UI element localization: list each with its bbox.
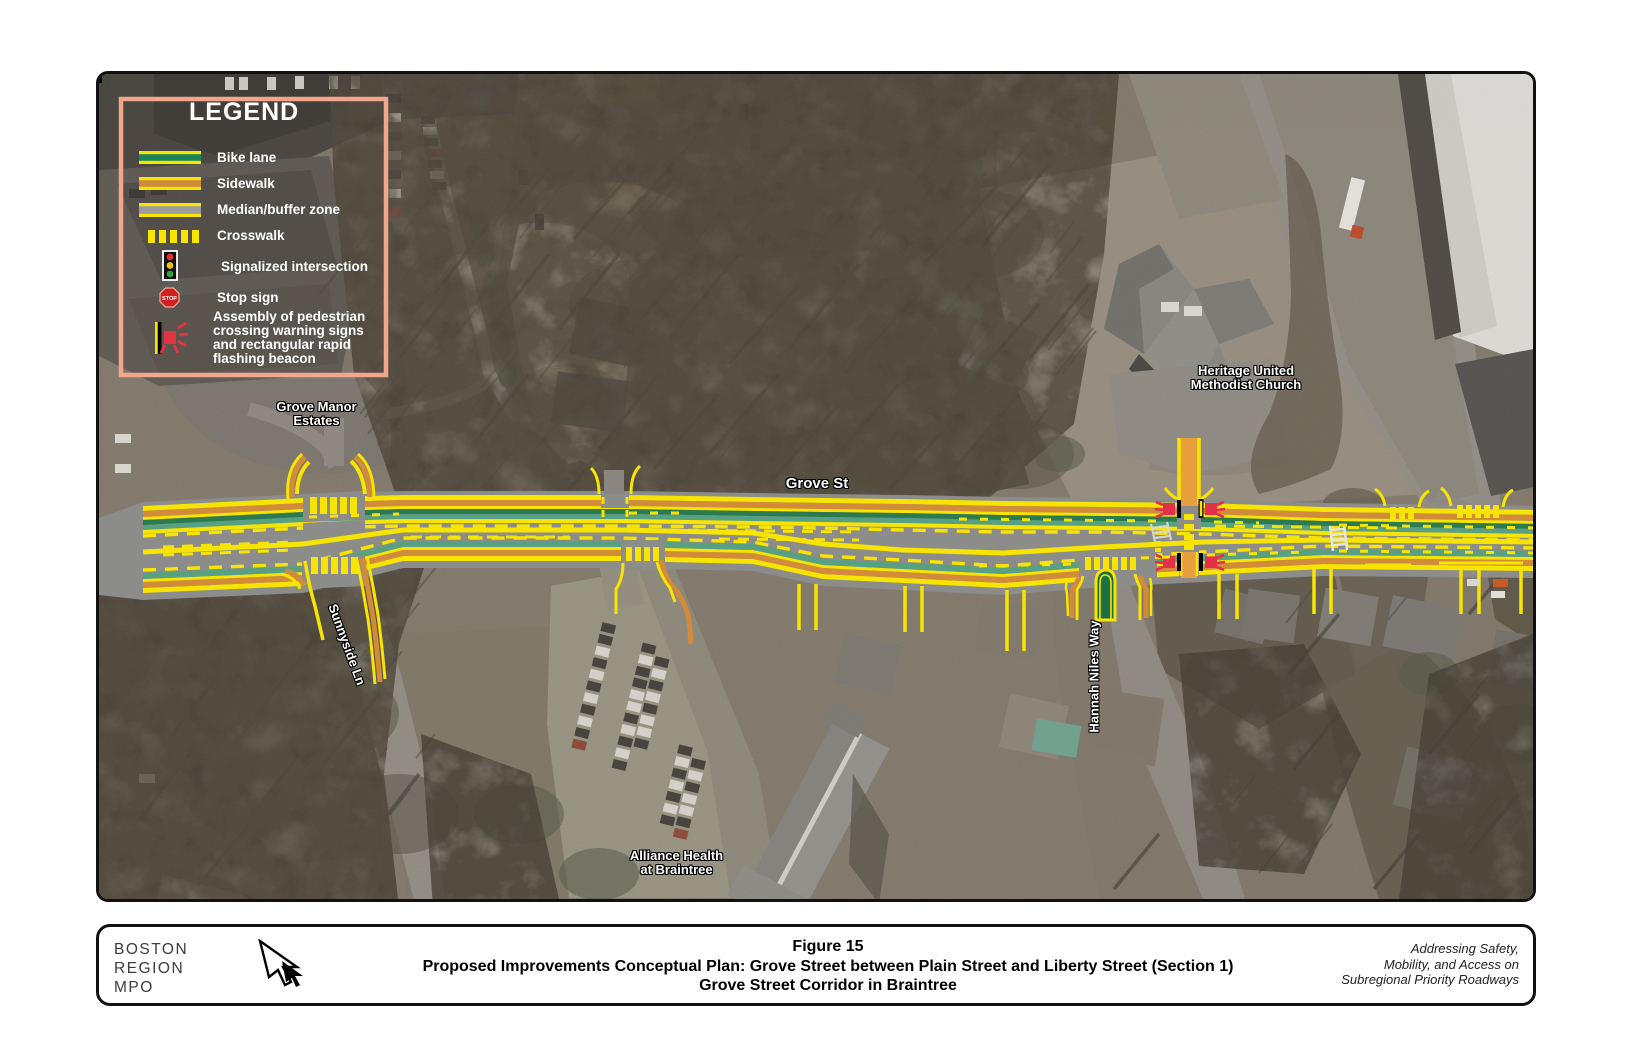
svg-text:Stop sign: Stop sign	[217, 290, 279, 305]
svg-text:Assembly of pedestrian: Assembly of pedestrian	[213, 309, 365, 324]
svg-text:flashing beacon: flashing beacon	[213, 351, 316, 366]
svg-text:LEGEND: LEGEND	[189, 98, 299, 126]
svg-text:Bike lane: Bike lane	[217, 150, 277, 165]
svg-text:Crosswalk: Crosswalk	[217, 228, 285, 243]
svg-text:Sidewalk: Sidewalk	[217, 176, 275, 191]
svg-text:Signalized intersection: Signalized intersection	[221, 259, 368, 274]
svg-text:crossing warning signs: crossing warning signs	[213, 323, 364, 338]
svg-text:and rectangular rapid: and rectangular rapid	[213, 337, 351, 352]
svg-text:Median/buffer zone: Median/buffer zone	[217, 202, 340, 217]
svg-text:STOP: STOP	[162, 296, 177, 302]
